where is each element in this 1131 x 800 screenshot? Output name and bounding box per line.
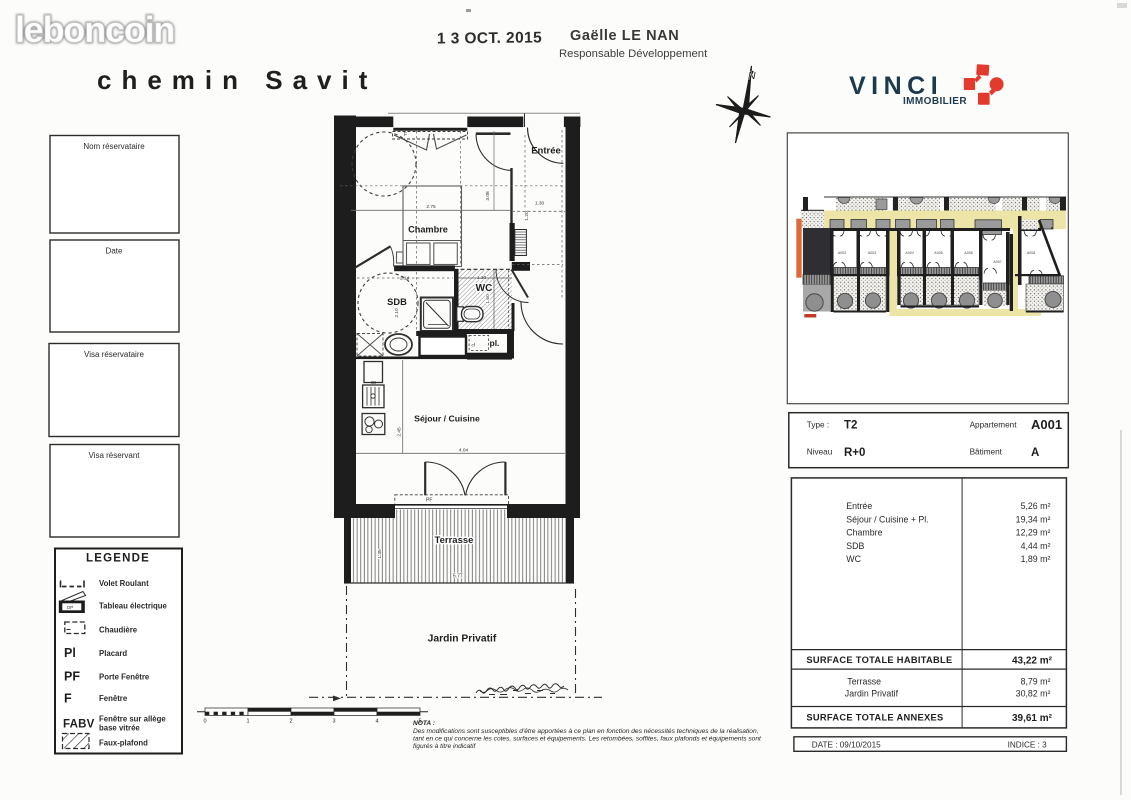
svg-text:A002: A002: [838, 251, 846, 255]
svg-text:2: 2: [289, 719, 292, 725]
svg-text:NOTA :: NOTA :: [413, 720, 435, 727]
svg-text:Type :: Type :: [807, 421, 829, 430]
svg-text:T2: T2: [844, 420, 857, 432]
svg-text:2.75: 2.75: [426, 204, 436, 210]
svg-text:WC: WC: [476, 283, 493, 294]
svg-text:2.10: 2.10: [394, 308, 400, 318]
svg-text:19,34 m²: 19,34 m²: [1016, 514, 1051, 524]
svg-text:0: 0: [203, 719, 206, 725]
svg-text:figurés à titre indicatif: figurés à titre indicatif: [413, 743, 476, 750]
svg-text:Jardin Privatif: Jardin Privatif: [428, 634, 497, 645]
svg-text:2.14: 2.14: [400, 276, 410, 282]
svg-text:WC: WC: [846, 554, 861, 564]
svg-text:SDB: SDB: [846, 541, 864, 551]
svg-text:Gaëlle LE NAN: Gaëlle LE NAN: [570, 28, 679, 44]
svg-text:pl.: pl.: [490, 338, 500, 348]
svg-text:4.04: 4.04: [459, 448, 469, 454]
svg-text:Porte Fenêtre: Porte Fenêtre: [99, 673, 150, 682]
svg-text:INDICE : 3: INDICE : 3: [1008, 740, 1048, 749]
svg-text:Séjour / Cuisine: Séjour / Cuisine: [414, 414, 480, 424]
svg-text:12,29 m²: 12,29 m²: [1016, 528, 1051, 538]
svg-text:Pl: Pl: [64, 646, 76, 660]
svg-text:Faux-plafond: Faux-plafond: [99, 739, 148, 748]
svg-text:43,22 m²: 43,22 m²: [1012, 656, 1053, 667]
svg-text:Entrée: Entrée: [846, 501, 872, 511]
svg-text:Fenêtre sur allège: Fenêtre sur allège: [99, 715, 166, 724]
svg-text:DATE : 09/10/2015: DATE : 09/10/2015: [812, 740, 881, 749]
svg-text:N: N: [748, 70, 756, 82]
svg-text:A001: A001: [1031, 417, 1062, 432]
svg-text:5,26 m²: 5,26 m²: [1021, 501, 1051, 511]
svg-text:DP: DP: [67, 605, 73, 610]
svg-text:Visa réservant: Visa réservant: [89, 451, 141, 460]
svg-text:Date: Date: [106, 247, 123, 256]
svg-text:leboncoin: leboncoin: [15, 9, 174, 50]
svg-text:3: 3: [332, 719, 335, 725]
svg-text:1,89 m²: 1,89 m²: [1021, 554, 1051, 564]
svg-text:Terrasse: Terrasse: [847, 677, 881, 687]
svg-text:A006: A006: [964, 251, 972, 255]
svg-text:Séjour / Cuisine + Pl.: Séjour / Cuisine + Pl.: [846, 514, 928, 524]
svg-text:Visa réservataire: Visa réservataire: [84, 350, 144, 359]
svg-text:A008: A008: [1027, 251, 1035, 255]
svg-text:base vitrée: base vitrée: [99, 724, 140, 733]
svg-text:1.20: 1.20: [524, 211, 530, 221]
svg-text:8,79 m²: 8,79 m²: [1021, 677, 1051, 687]
svg-text:4,44 m²: 4,44 m²: [1021, 541, 1051, 551]
svg-text:Appartement: Appartement: [970, 421, 1018, 430]
svg-text:Fenêtre: Fenêtre: [99, 694, 128, 703]
svg-text:SURFACE TOTALE HABITABLE: SURFACE TOTALE HABITABLE: [806, 655, 952, 665]
svg-text:Tableau électrique: Tableau électrique: [99, 602, 168, 611]
svg-text:39,61 m²: 39,61 m²: [1012, 713, 1053, 724]
svg-text:Chaudière: Chaudière: [99, 626, 138, 635]
svg-text:Placard: Placard: [99, 649, 127, 658]
svg-text:4: 4: [375, 719, 378, 725]
svg-text:1: 1: [246, 719, 249, 725]
svg-text:cf: cf: [472, 343, 476, 348]
svg-text:30,82 m²: 30,82 m²: [1016, 688, 1051, 698]
svg-text:IMMOBILIER: IMMOBILIER: [903, 96, 967, 107]
svg-text:chemin Savit: chemin Savit: [97, 65, 377, 95]
svg-text:tant en ce qui concerne les co: tant en ce qui concerne les cotes, surfa…: [413, 736, 762, 743]
svg-text:A005: A005: [934, 251, 942, 255]
svg-text:Jardin Privatif: Jardin Privatif: [845, 688, 899, 698]
svg-text:Niveau: Niveau: [807, 448, 833, 457]
svg-text:LEGENDE: LEGENDE: [86, 553, 150, 565]
svg-text:2.45: 2.45: [397, 427, 403, 437]
svg-text:Responsable Développement: Responsable Développement: [559, 48, 708, 60]
svg-text:Nom réservataire: Nom réservataire: [83, 142, 145, 151]
svg-text:1.35: 1.35: [377, 549, 383, 559]
svg-text:Chambre: Chambre: [408, 225, 448, 235]
svg-text:Chambre: Chambre: [846, 528, 882, 538]
svg-text:F: F: [64, 692, 72, 706]
svg-text:SURFACE TOTALE ANNEXES: SURFACE TOTALE ANNEXES: [806, 713, 943, 723]
svg-text:1.60: 1.60: [485, 294, 491, 304]
svg-text:A004: A004: [905, 251, 913, 255]
svg-text:Bâtiment: Bâtiment: [970, 448, 1003, 457]
svg-text:PF: PF: [426, 498, 432, 504]
svg-text:A: A: [1031, 447, 1039, 459]
svg-text:Des modifications sont suscept: Des modifications sont susceptibles d'êt…: [413, 728, 759, 735]
svg-text:F: F: [404, 132, 407, 138]
svg-text:Terrasse: Terrasse: [435, 535, 474, 546]
svg-text:5.77: 5.77: [453, 574, 463, 580]
svg-text:FABV: FABV: [63, 719, 95, 731]
svg-text:Entrée: Entrée: [531, 146, 561, 157]
svg-text:SDB: SDB: [387, 297, 407, 307]
svg-text:A003: A003: [868, 251, 876, 255]
svg-text:3.08: 3.08: [485, 191, 491, 201]
svg-text:PF: PF: [64, 670, 80, 684]
svg-text:1.30: 1.30: [535, 201, 545, 207]
svg-text:1 3 OCT. 2015: 1 3 OCT. 2015: [437, 29, 542, 47]
svg-text:R+0: R+0: [844, 447, 865, 459]
svg-text:A007: A007: [993, 260, 1001, 264]
svg-text:Volet Roulant: Volet Roulant: [99, 579, 149, 588]
